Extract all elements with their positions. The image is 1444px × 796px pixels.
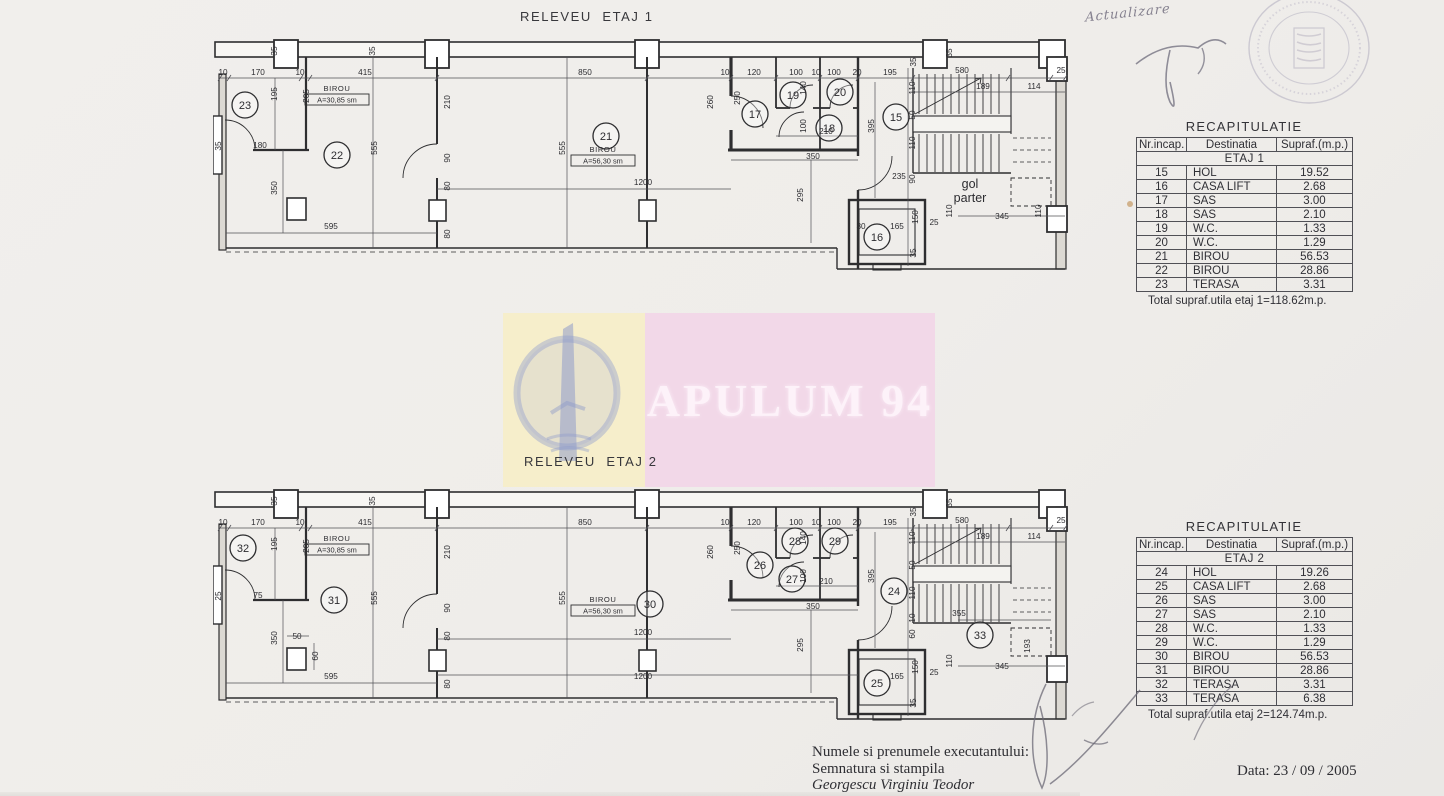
dimension-label: 110 [908, 136, 917, 149]
dimension-label: 350 [806, 602, 820, 611]
column-header: Supraf.(m.p.) [1277, 538, 1353, 552]
dimension-label: 75 [253, 591, 263, 600]
table-cell: W.C. [1187, 222, 1277, 236]
dimension-label: 80 [443, 679, 452, 689]
dimension-label: 10 [295, 518, 305, 527]
table-row: 30BIROU56.53 [1137, 650, 1353, 664]
dimension-label: 20 [852, 68, 862, 77]
dimension-label: 10 [908, 613, 917, 623]
dimension-label: 120 [747, 518, 761, 527]
table-cell: 1.33 [1277, 222, 1353, 236]
floor-plan-etaj1: 232221171920181516BIROUA=30,85 smBIROUA=… [213, 38, 1073, 286]
dimension-label: 35 [909, 698, 918, 708]
table-row: 23TERASA3.31 [1137, 278, 1353, 292]
dimension-label: 345 [995, 662, 1009, 671]
dimension-label: 195 [883, 518, 897, 527]
dimension-label: 100 [827, 68, 841, 77]
dimension-label: 395 [867, 569, 876, 583]
void-label: gol [962, 177, 979, 191]
table-row: 22BIROU28.86 [1137, 264, 1353, 278]
room-number: 33 [974, 630, 986, 642]
dimension-label: 195 [270, 537, 279, 551]
table-cell: 16 [1137, 180, 1187, 194]
official-round-stamp [1242, 0, 1376, 114]
table-cell: 21 [1137, 250, 1187, 264]
table-cell: 56.53 [1277, 250, 1353, 264]
dimension-label: 165 [890, 672, 904, 681]
room-number: 15 [890, 112, 902, 124]
dimension-label: 345 [995, 212, 1009, 221]
dimension-label: 114 [1027, 532, 1040, 541]
recap-title: RECAPITULATIE [1136, 519, 1352, 534]
table-row: 26SAS3.00 [1137, 594, 1353, 608]
dimension-label: 35 [368, 496, 377, 506]
scanned-document-page: RELEVEU ETAJ 1 RELEVEU ETAJ 2 2322211719… [0, 0, 1444, 796]
dimension-label: 555 [370, 141, 379, 155]
table-cell: 29 [1137, 636, 1187, 650]
dimension-label: 25 [214, 591, 223, 601]
dimension-label: 110 [908, 531, 917, 544]
dimension-label: 150 [911, 660, 920, 674]
dimension-label: 195 [270, 87, 279, 101]
table-cell: 30 [1137, 650, 1187, 664]
dimension-label: 260 [706, 95, 715, 109]
dimension-label: 100 [789, 68, 803, 77]
table-row: 19W.C.1.33 [1137, 222, 1353, 236]
room-number: 26 [754, 560, 766, 572]
table-cell: 17 [1137, 194, 1187, 208]
dimension-label: 165 [890, 222, 904, 231]
table-row: 17SAS3.00 [1137, 194, 1353, 208]
dimension-label: 10 [720, 518, 730, 527]
dimension-label: 25 [929, 218, 939, 227]
table-cell: 19.52 [1277, 166, 1353, 180]
table-cell: 28 [1137, 622, 1187, 636]
dimension-label: 35 [909, 57, 918, 67]
room-area-label: A=56,30 sm [583, 157, 623, 166]
table-cell: CASA LIFT [1187, 580, 1277, 594]
group-row-label: ETAJ 1 [1137, 152, 1353, 166]
dimension-label: 50 [908, 110, 917, 120]
dimension-label: 1200 [634, 672, 653, 681]
dimension-label: 350 [806, 152, 820, 161]
paper-speck [1127, 201, 1133, 207]
dimension-label: 110 [1034, 204, 1043, 217]
watermark-band: APULUM 94 [645, 313, 935, 487]
dimension-label: 20 [852, 518, 862, 527]
room-area-label: A=30,85 sm [317, 96, 357, 105]
recap-title: RECAPITULATIE [1136, 119, 1352, 134]
dimension-label: 30 [856, 222, 866, 231]
table-cell: 2.10 [1277, 208, 1353, 222]
column-header: Destinatia [1187, 138, 1277, 152]
dimension-label: 595 [324, 222, 338, 231]
dimension-label: 35 [270, 46, 279, 56]
dimension-label: 140 [799, 531, 808, 545]
dimension-label: 210 [819, 127, 833, 136]
dimension-label: 100 [789, 518, 803, 527]
table-cell: W.C. [1187, 236, 1277, 250]
dimension-label: 415 [358, 68, 372, 77]
table-cell: HOL [1187, 566, 1277, 580]
table-cell: 1.29 [1277, 236, 1353, 250]
dimension-label: 25 [929, 668, 939, 677]
table-cell: 3.31 [1277, 278, 1353, 292]
dimension-label: 395 [867, 119, 876, 133]
room-number: 16 [871, 232, 883, 244]
dimension-label: 90 [443, 603, 452, 613]
dimension-label: 10 [218, 518, 228, 527]
table-cell: BIROU [1187, 664, 1277, 678]
table-row: 24HOL19.26 [1137, 566, 1353, 580]
dimension-label: 193 [1023, 639, 1032, 653]
dimension-label: 1200 [634, 628, 653, 637]
floor-plan-etaj2: 32313026282927242533BIROUA=30,85 smBIROU… [213, 488, 1073, 723]
table-cell: 3.31 [1277, 678, 1353, 692]
dimension-label: 205 [302, 89, 311, 103]
room-number: 24 [888, 586, 900, 598]
table-row: 27SAS2.10 [1137, 608, 1353, 622]
room-number: 21 [600, 131, 612, 143]
table-cell: 28.86 [1277, 664, 1353, 678]
room-use-label: BIROU [589, 145, 616, 154]
dimension-label: 180 [253, 141, 267, 150]
dimension-label: 120 [747, 68, 761, 77]
dimension-label: 25 [1056, 516, 1066, 525]
dimension-label: 110 [945, 204, 954, 217]
dimension-label: 350 [270, 181, 279, 195]
table-row: 18SAS2.10 [1137, 208, 1353, 222]
dimension-label: 170 [251, 68, 265, 77]
dimension-label: 80 [443, 229, 452, 239]
dimension-label: 415 [358, 518, 372, 527]
dimension-label: 595 [324, 672, 338, 681]
room-number: 29 [829, 536, 841, 548]
table-cell: SAS [1187, 594, 1277, 608]
table-cell: 31 [1137, 664, 1187, 678]
room-number: 27 [786, 574, 798, 586]
table-cell: HOL [1187, 166, 1277, 180]
dimension-label: 555 [370, 591, 379, 605]
table-cell: 3.00 [1277, 194, 1353, 208]
recap-grid: Nr.incap.DestinatiaSupraf.(m.p.)ETAJ 115… [1136, 137, 1353, 292]
dimension-label: 100 [799, 119, 808, 133]
dimension-label: 10 [218, 68, 228, 77]
table-cell: 1.29 [1277, 636, 1353, 650]
dimension-label: 250 [733, 91, 742, 105]
table-cell: TERASA [1187, 278, 1277, 292]
table-header-row: Nr.incap.DestinatiaSupraf.(m.p.) [1137, 538, 1353, 552]
dimension-label: 295 [796, 188, 805, 202]
void-label: parter [954, 191, 987, 205]
room-number: 30 [644, 599, 656, 611]
dimension-label: 35 [945, 498, 954, 508]
table-cell: 3.00 [1277, 594, 1353, 608]
table-cell: 20 [1137, 236, 1187, 250]
dimension-label: 260 [706, 545, 715, 559]
table-cell: W.C. [1187, 622, 1277, 636]
room-area-label: A=30,85 sm [317, 546, 357, 555]
table-cell: BIROU [1187, 250, 1277, 264]
table-header-row: Nr.incap.DestinatiaSupraf.(m.p.) [1137, 138, 1353, 152]
table-row: 28W.C.1.33 [1137, 622, 1353, 636]
table-cell: 2.10 [1277, 608, 1353, 622]
room-use-label: BIROU [323, 84, 350, 93]
dimension-label: 50 [908, 560, 917, 570]
table-cell: SAS [1187, 608, 1277, 622]
table-cell: BIROU [1187, 264, 1277, 278]
table-cell: 18 [1137, 208, 1187, 222]
handwritten-signature-bottom [988, 678, 1248, 796]
table-cell: 23 [1137, 278, 1187, 292]
table-cell: 27 [1137, 608, 1187, 622]
table-cell: 6.38 [1277, 692, 1353, 706]
column-header: Supraf.(m.p.) [1277, 138, 1353, 152]
dimension-label: 295 [796, 638, 805, 652]
room-use-label: BIROU [589, 595, 616, 604]
table-row: 15HOL19.52 [1137, 166, 1353, 180]
table-row: 21BIROU56.53 [1137, 250, 1353, 264]
table-cell: 22 [1137, 264, 1187, 278]
dimension-label: 80 [443, 631, 452, 641]
dimension-label: 110 [945, 654, 954, 667]
table-row: 16CASA LIFT2.68 [1137, 180, 1353, 194]
dimension-label: 100 [827, 518, 841, 527]
room-area-label: A=56,30 sm [583, 607, 623, 616]
dimension-label: 10 [295, 68, 305, 77]
dimension-label: 250 [733, 541, 742, 555]
dimension-label: 580 [955, 516, 969, 525]
dimension-label: 114 [1027, 82, 1040, 91]
dimension-label: 355 [952, 609, 966, 618]
dimension-label: 10 [811, 68, 821, 77]
dimension-label: 35 [909, 248, 918, 258]
dimension-label: 170 [251, 518, 265, 527]
dimension-label: 555 [558, 141, 567, 155]
table-cell: 19.26 [1277, 566, 1353, 580]
dimension-label: 140 [799, 81, 808, 95]
recap-table-etaj1: RECAPITULATIENr.incap.DestinatiaSupraf.(… [1136, 119, 1352, 307]
table-cell: SAS [1187, 194, 1277, 208]
dimension-label: 100 [799, 569, 808, 583]
column-header: Nr.incap. [1137, 138, 1187, 152]
room-number: 25 [871, 678, 883, 690]
table-cell: 56.53 [1277, 650, 1353, 664]
dimension-label: 10 [811, 518, 821, 527]
table-row: 25CASA LIFT2.68 [1137, 580, 1353, 594]
dimension-label: 90 [443, 153, 452, 163]
table-row: 20W.C.1.29 [1137, 236, 1353, 250]
room-number: 23 [239, 100, 251, 112]
dimension-label: 350 [270, 631, 279, 645]
room-number: 31 [328, 595, 340, 607]
dimension-label: 150 [911, 210, 920, 224]
scan-edge-shadow [0, 792, 1080, 796]
column-header: Nr.incap. [1137, 538, 1187, 552]
dimension-label: 555 [558, 591, 567, 605]
table-cell: 26 [1137, 594, 1187, 608]
date-label: Data: 23 / 09 / 2005 [1237, 763, 1357, 780]
dimension-label: 35 [945, 48, 954, 58]
room-number: 22 [331, 150, 343, 162]
table-cell: 19 [1137, 222, 1187, 236]
table-cell: BIROU [1187, 650, 1277, 664]
watermark-text: APULUM 94 [647, 374, 933, 427]
dimension-label: 189 [976, 532, 990, 541]
dimension-label: 35 [214, 141, 223, 151]
dimension-label: 110 [908, 586, 917, 599]
dimension-label: 110 [908, 81, 917, 94]
dimension-label: 205 [302, 539, 311, 553]
dimension-label: 1200 [634, 178, 653, 187]
room-number: 17 [749, 109, 761, 121]
dimension-label: 850 [578, 518, 592, 527]
room-number: 32 [237, 543, 249, 555]
dimension-label: 35 [368, 46, 377, 56]
column-header: Destinatia [1187, 538, 1277, 552]
dimension-label: 235 [892, 172, 906, 181]
dimension-label: 195 [883, 68, 897, 77]
table-cell: 28.86 [1277, 264, 1353, 278]
dimension-label: 90 [908, 174, 917, 184]
dimension-label: 80 [443, 181, 452, 191]
dimension-label: 35 [270, 496, 279, 506]
table-total: Total supraf.utila etaj 1=118.62m.p. [1136, 295, 1352, 307]
plan-title-etaj1: RELEVEU ETAJ 1 [520, 9, 654, 24]
table-cell: SAS [1187, 208, 1277, 222]
dimension-label: 25 [1056, 66, 1066, 75]
room-number: 19 [787, 90, 799, 102]
dimension-label: 210 [443, 545, 452, 559]
table-row: 31BIROU28.86 [1137, 664, 1353, 678]
table-row: 29W.C.1.29 [1137, 636, 1353, 650]
plan-title-etaj2: RELEVEU ETAJ 2 [524, 454, 658, 469]
dimension-label: 580 [955, 66, 969, 75]
dimension-label: 850 [578, 68, 592, 77]
dimension-label: 50 [292, 632, 302, 641]
table-cell: 24 [1137, 566, 1187, 580]
dimension-label: 10 [720, 68, 730, 77]
table-cell: 2.68 [1277, 180, 1353, 194]
table-cell: 25 [1137, 580, 1187, 594]
dimension-label: 60 [908, 629, 917, 639]
table-cell: CASA LIFT [1187, 180, 1277, 194]
dimension-label: 210 [443, 95, 452, 109]
dimension-label: 189 [976, 82, 990, 91]
dimension-label: 210 [819, 577, 833, 586]
dimension-label: 35 [909, 507, 918, 517]
dimension-label: 60 [311, 651, 320, 661]
table-cell: W.C. [1187, 636, 1277, 650]
table-cell: 15 [1137, 166, 1187, 180]
handwritten-signature-top [1128, 22, 1238, 118]
group-row-label: ETAJ 2 [1137, 552, 1353, 566]
table-cell: 1.33 [1277, 622, 1353, 636]
room-use-label: BIROU [323, 534, 350, 543]
table-cell: 2.68 [1277, 580, 1353, 594]
room-number: 20 [834, 87, 846, 99]
